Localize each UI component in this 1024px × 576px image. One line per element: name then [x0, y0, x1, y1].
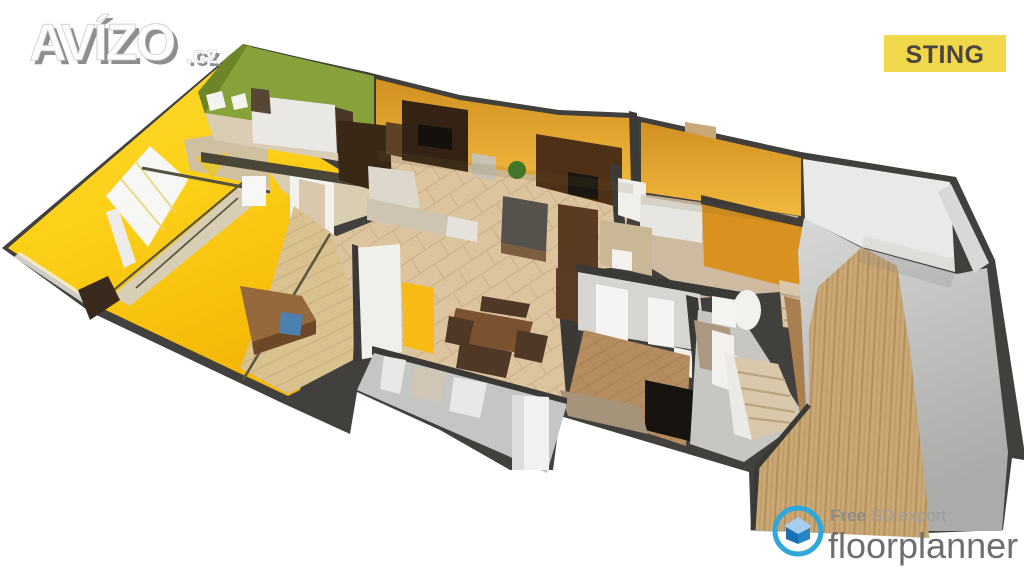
svg-text:floorplanner: floorplanner: [828, 525, 1018, 566]
svg-text:Free SD export: Free SD export: [830, 506, 947, 525]
svg-text:AVÍZO: AVÍZO: [29, 14, 175, 72]
svg-text:STING: STING: [906, 41, 985, 69]
svg-text:.cz: .cz: [186, 42, 218, 69]
